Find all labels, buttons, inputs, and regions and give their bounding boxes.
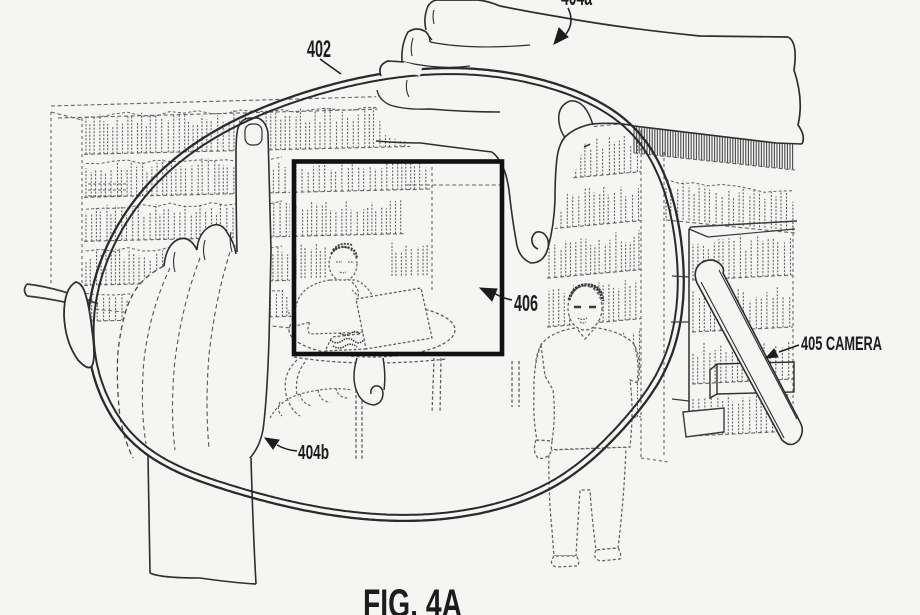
svg-text:402: 402: [307, 36, 331, 63]
svg-text:FIG. 4A: FIG. 4A: [363, 582, 462, 615]
svg-text:404a: 404a: [561, 0, 592, 11]
svg-text:406: 406: [514, 290, 538, 316]
svg-text:404b: 404b: [298, 442, 329, 464]
svg-text:405 CAMERA: 405 CAMERA: [801, 334, 882, 355]
